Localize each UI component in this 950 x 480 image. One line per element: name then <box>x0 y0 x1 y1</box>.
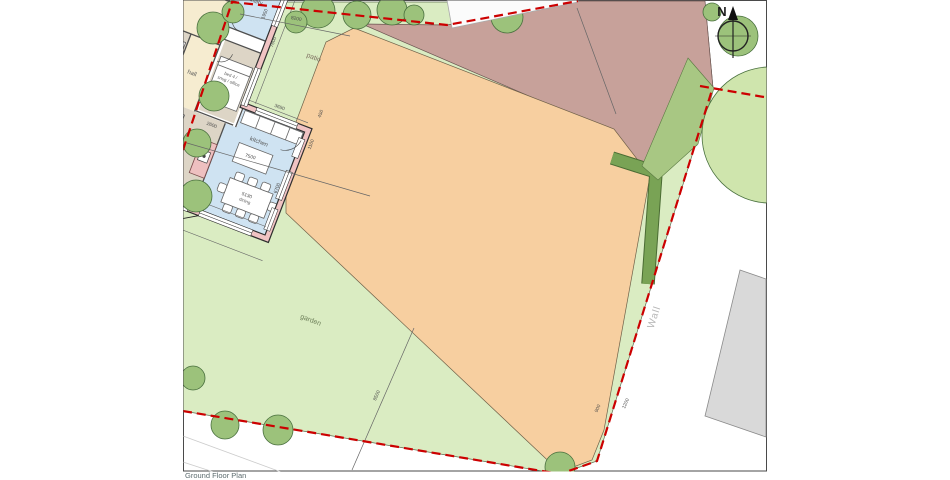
room-label-living: living <box>154 139 169 150</box>
bifold-door-arrow-1 <box>109 183 151 209</box>
area-label-patio-bottom: patio <box>164 228 180 240</box>
floor-plan-drawing: bins <box>0 0 950 480</box>
dim-4850: 4850 <box>21 27 33 37</box>
drawing-title: Ground Floor Plan <box>185 471 246 480</box>
site-plan-page: bins <box>0 0 950 480</box>
dim-1600: 1600 <box>169 114 181 124</box>
dim-11250: 11250 <box>169 218 184 228</box>
room-label-bed3: bed 3 <box>141 43 158 54</box>
area-label-patio-left: patio <box>43 69 59 81</box>
room-label-bed1: bed 1 <box>28 0 45 4</box>
north-label: N <box>717 4 726 19</box>
room-label-ensuite: ensuite <box>91 24 107 34</box>
dim-4350: 4350 <box>131 71 143 81</box>
